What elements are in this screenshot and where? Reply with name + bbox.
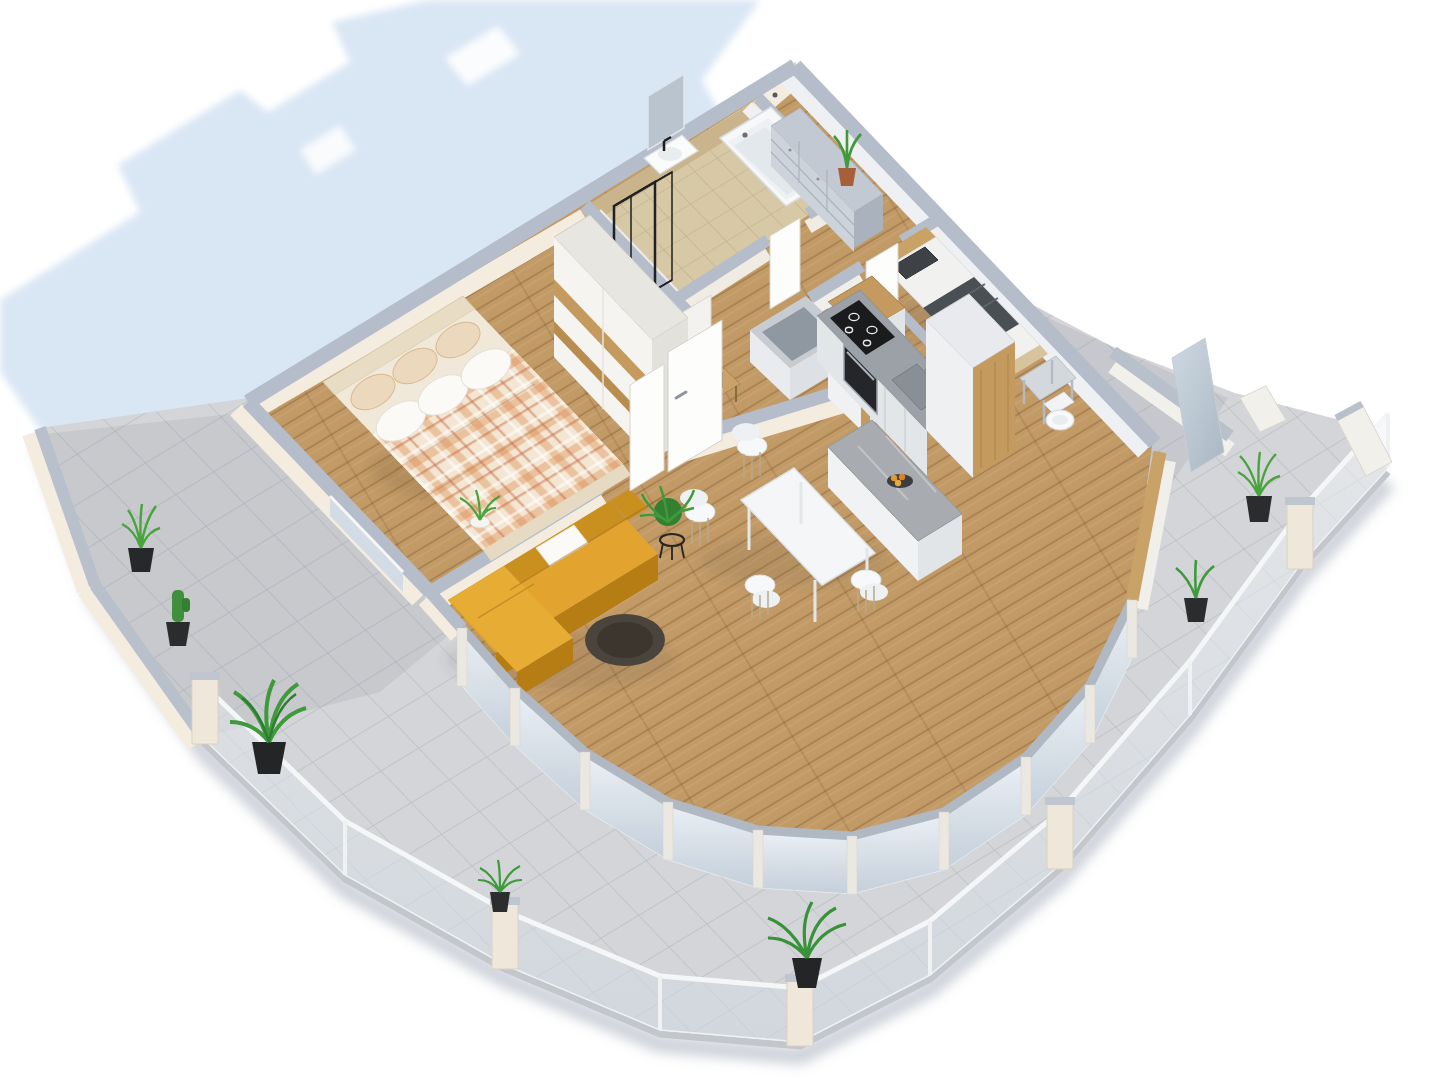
black-pot	[166, 622, 190, 646]
cactus-arm	[182, 598, 190, 612]
fruit	[895, 480, 901, 486]
black-pot	[490, 892, 510, 912]
door-leaf	[630, 364, 664, 491]
black-pot	[1184, 598, 1208, 622]
floor-plan-render: 3D isometric apartment floor plan render	[0, 0, 1440, 1080]
floor-plan-svg: 3D isometric apartment floor plan render	[0, 0, 1440, 1080]
black-pot	[1246, 496, 1272, 522]
fruit	[899, 474, 905, 480]
railing-post	[1285, 497, 1315, 569]
railing-post	[190, 672, 220, 744]
terracotta-pot	[838, 168, 856, 186]
drawer-handle	[816, 177, 819, 180]
rug-inner	[597, 622, 653, 658]
drawer-handle	[788, 148, 791, 151]
toilet-seat	[1052, 415, 1068, 425]
sink-basin	[658, 147, 682, 161]
black-pot	[128, 548, 154, 572]
railing-post	[1045, 797, 1075, 869]
black-pot	[252, 742, 286, 774]
fruit	[891, 475, 897, 481]
bathtub-faucet	[742, 132, 747, 137]
entry-door-handle	[773, 93, 778, 98]
